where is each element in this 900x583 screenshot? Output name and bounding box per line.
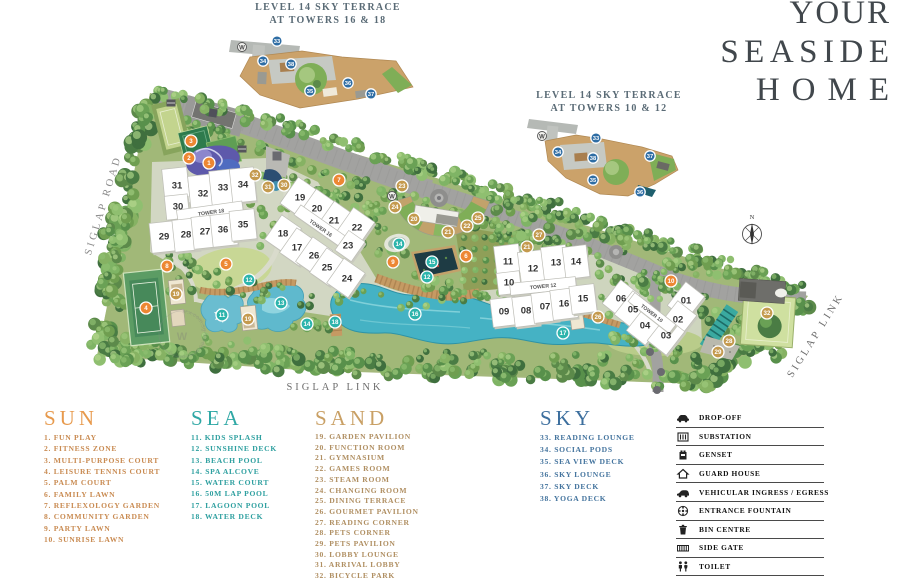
svg-text:W: W	[389, 194, 395, 200]
svg-text:36: 36	[218, 224, 229, 235]
svg-text:01: 01	[681, 295, 692, 306]
svg-text:14: 14	[396, 241, 403, 248]
svg-text:8: 8	[165, 263, 169, 270]
svg-text:16: 16	[559, 298, 570, 309]
svg-text:20: 20	[411, 216, 418, 223]
svg-text:35: 35	[590, 178, 597, 184]
svg-text:25: 25	[475, 215, 482, 222]
svg-text:21: 21	[445, 229, 452, 236]
svg-text:10: 10	[668, 278, 675, 285]
svg-text:34: 34	[238, 179, 249, 190]
svg-text:N: N	[750, 214, 755, 221]
svg-text:36: 36	[345, 81, 352, 87]
svg-text:33: 33	[593, 136, 600, 142]
svg-text:31: 31	[172, 180, 183, 191]
svg-text:21: 21	[524, 244, 531, 251]
svg-text:9: 9	[391, 259, 395, 266]
svg-text:27: 27	[536, 232, 543, 239]
svg-text:27: 27	[200, 226, 211, 237]
svg-text:12: 12	[424, 274, 431, 281]
svg-text:22: 22	[352, 222, 363, 233]
svg-text:11: 11	[503, 256, 514, 267]
svg-text:34: 34	[555, 150, 562, 156]
svg-text:05: 05	[628, 304, 639, 315]
svg-text:25: 25	[322, 262, 333, 273]
svg-text:03: 03	[661, 330, 672, 341]
svg-text:22: 22	[464, 223, 471, 230]
svg-text:17: 17	[292, 242, 303, 253]
svg-text:17: 17	[560, 330, 567, 337]
svg-text:04: 04	[640, 320, 651, 331]
svg-text:14: 14	[304, 321, 311, 328]
svg-text:33: 33	[218, 182, 229, 193]
svg-text:5: 5	[224, 261, 228, 268]
svg-text:02: 02	[673, 314, 684, 325]
svg-text:32: 32	[198, 188, 209, 199]
svg-text:37: 37	[368, 92, 374, 98]
svg-text:W: W	[177, 331, 188, 343]
svg-text:38: 38	[590, 156, 597, 162]
svg-text:19: 19	[295, 192, 306, 203]
svg-text:36: 36	[637, 190, 644, 196]
svg-text:28: 28	[726, 338, 733, 345]
svg-text:38: 38	[288, 62, 295, 68]
svg-text:28: 28	[181, 229, 192, 240]
svg-text:12: 12	[528, 263, 539, 274]
svg-text:35: 35	[307, 89, 314, 95]
svg-text:29: 29	[715, 349, 722, 356]
svg-text:32: 32	[764, 310, 771, 317]
svg-text:34: 34	[260, 59, 267, 65]
svg-text:08: 08	[521, 305, 532, 316]
svg-text:18: 18	[278, 228, 289, 239]
svg-text:10: 10	[504, 277, 515, 288]
svg-text:24: 24	[342, 273, 353, 284]
svg-text:19: 19	[245, 316, 252, 323]
svg-text:23: 23	[399, 183, 406, 190]
svg-text:1: 1	[207, 160, 211, 167]
svg-text:6: 6	[464, 253, 468, 260]
svg-text:21: 21	[329, 215, 340, 226]
svg-text:14: 14	[571, 256, 582, 267]
svg-text:16: 16	[412, 311, 419, 318]
svg-text:07: 07	[540, 301, 551, 312]
svg-text:35: 35	[238, 219, 249, 230]
svg-text:4: 4	[144, 305, 148, 312]
svg-text:09: 09	[499, 306, 510, 317]
svg-text:31: 31	[265, 184, 272, 191]
svg-text:3: 3	[189, 138, 193, 145]
svg-text:11: 11	[219, 312, 226, 319]
svg-text:W: W	[539, 134, 545, 140]
svg-text:06: 06	[616, 293, 627, 304]
svg-text:15: 15	[578, 293, 589, 304]
svg-text:30: 30	[281, 182, 288, 189]
svg-text:37: 37	[647, 154, 653, 160]
svg-text:12: 12	[246, 277, 253, 284]
svg-text:23: 23	[343, 240, 354, 251]
svg-text:26: 26	[309, 250, 320, 261]
svg-text:30: 30	[173, 201, 184, 212]
svg-text:18: 18	[332, 319, 339, 326]
svg-text:7: 7	[337, 177, 341, 184]
svg-text:19: 19	[173, 291, 180, 298]
svg-text:26: 26	[595, 314, 602, 321]
svg-text:33: 33	[274, 39, 281, 45]
svg-text:20: 20	[312, 203, 323, 214]
svg-text:29: 29	[159, 231, 170, 242]
svg-text:W: W	[239, 45, 245, 51]
svg-text:15: 15	[429, 259, 436, 266]
svg-text:SIGLAP LINK: SIGLAP LINK	[286, 382, 383, 393]
svg-text:13: 13	[278, 300, 285, 307]
svg-text:24: 24	[392, 204, 399, 211]
svg-text:32: 32	[252, 172, 259, 179]
svg-text:13: 13	[551, 257, 562, 268]
svg-text:2: 2	[187, 155, 191, 162]
